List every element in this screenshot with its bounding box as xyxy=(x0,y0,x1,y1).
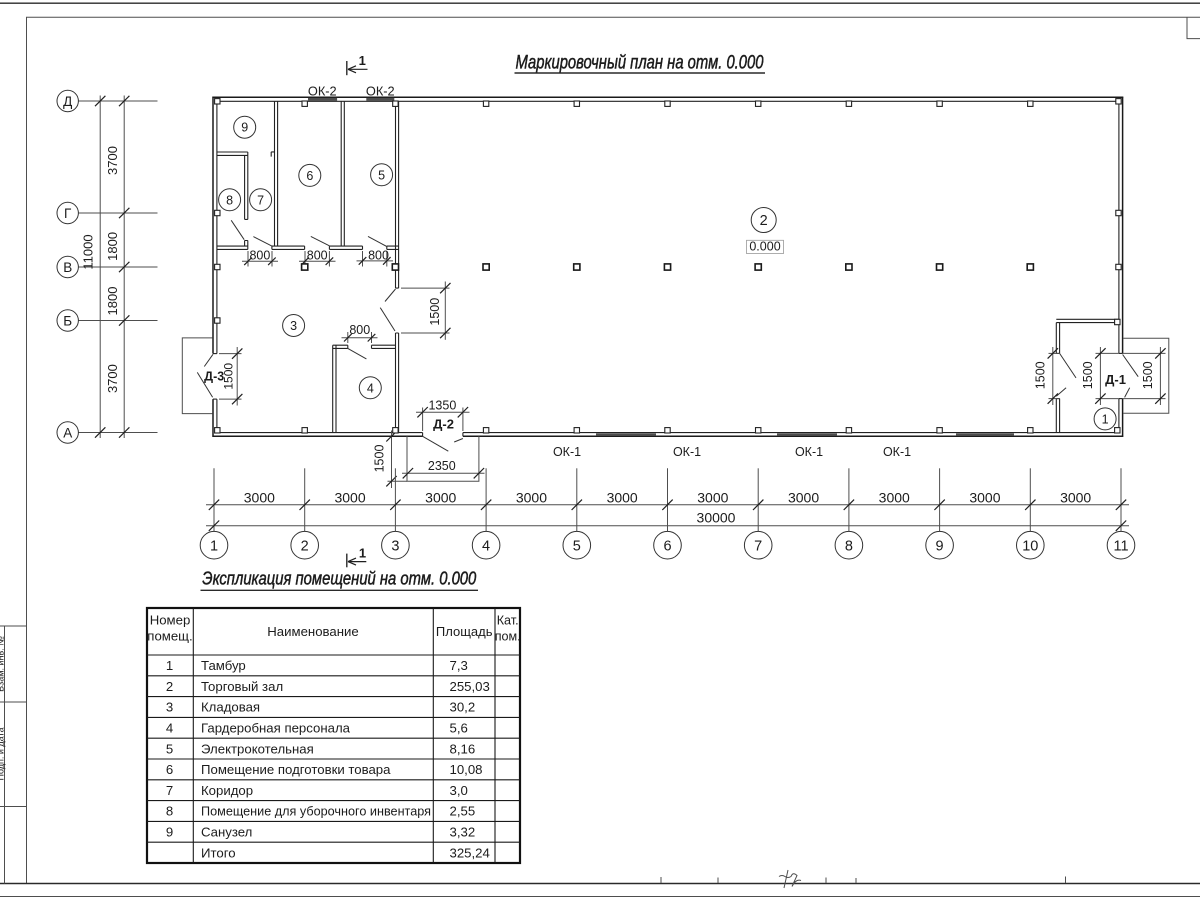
svg-text:3: 3 xyxy=(166,700,173,715)
svg-text:2: 2 xyxy=(760,213,768,229)
svg-text:1800: 1800 xyxy=(105,232,120,261)
svg-text:пом.: пом. xyxy=(495,629,521,643)
svg-text:11: 11 xyxy=(1113,538,1128,554)
svg-text:1500: 1500 xyxy=(428,298,442,326)
svg-text:1500: 1500 xyxy=(1033,361,1047,389)
svg-text:5: 5 xyxy=(166,741,173,756)
svg-text:5: 5 xyxy=(378,168,385,182)
svg-text:1500: 1500 xyxy=(1081,361,1095,389)
svg-text:Д: Д xyxy=(63,94,72,109)
svg-text:Кладовая: Кладовая xyxy=(201,700,260,715)
svg-text:255,03: 255,03 xyxy=(450,679,490,694)
svg-text:3000: 3000 xyxy=(969,489,1000,505)
svg-text:3000: 3000 xyxy=(788,489,819,505)
svg-text:3700: 3700 xyxy=(105,146,120,175)
svg-text:Помещение подготовки товара: Помещение подготовки товара xyxy=(201,762,391,777)
svg-text:Помещение для уборочного инвен: Помещение для уборочного инвентаря xyxy=(201,804,431,819)
svg-text:5: 5 xyxy=(573,538,581,554)
svg-text:ОК-2: ОК-2 xyxy=(308,84,337,99)
svg-text:6: 6 xyxy=(166,762,173,777)
svg-text:7,3: 7,3 xyxy=(450,658,468,673)
svg-text:2: 2 xyxy=(301,538,309,554)
svg-text:1800: 1800 xyxy=(105,287,120,316)
svg-text:10: 10 xyxy=(1022,538,1038,554)
svg-text:Электрокотельная: Электрокотельная xyxy=(201,741,314,756)
svg-text:Гардеробная персонала: Гардеробная персонала xyxy=(201,721,351,736)
svg-text:Номер: Номер xyxy=(150,612,191,627)
svg-text:Итого: Итого xyxy=(201,845,236,860)
svg-text:3000: 3000 xyxy=(334,489,365,505)
svg-text:Д-2: Д-2 xyxy=(433,416,454,431)
svg-text:В: В xyxy=(63,260,72,275)
svg-text:Г: Г xyxy=(64,206,72,221)
svg-text:6: 6 xyxy=(663,538,671,554)
svg-text:30,2: 30,2 xyxy=(450,700,476,715)
svg-text:Взам. инв. №: Взам. инв. № xyxy=(0,636,6,692)
svg-text:11000: 11000 xyxy=(81,234,96,269)
svg-text:800: 800 xyxy=(307,249,328,263)
svg-text:800: 800 xyxy=(349,323,370,337)
svg-text:8: 8 xyxy=(845,538,853,554)
svg-text:800: 800 xyxy=(249,249,270,263)
svg-text:10,08: 10,08 xyxy=(450,762,483,777)
svg-text:7: 7 xyxy=(166,783,173,798)
svg-text:8: 8 xyxy=(226,193,233,207)
svg-text:2350: 2350 xyxy=(428,459,456,473)
svg-text:3,0: 3,0 xyxy=(450,783,468,798)
svg-text:3000: 3000 xyxy=(516,489,547,505)
svg-text:Коридор: Коридор xyxy=(201,783,253,798)
svg-text:3700: 3700 xyxy=(105,364,120,393)
svg-text:Торговый зал: Торговый зал xyxy=(201,679,283,694)
svg-text:Д-1: Д-1 xyxy=(1105,372,1126,387)
svg-text:9: 9 xyxy=(241,121,248,135)
svg-text:1500: 1500 xyxy=(373,445,387,473)
svg-text:800: 800 xyxy=(368,248,389,262)
svg-text:6: 6 xyxy=(306,169,313,183)
svg-text:Б: Б xyxy=(63,313,72,328)
svg-text:3000: 3000 xyxy=(425,489,456,505)
svg-text:3: 3 xyxy=(391,538,399,554)
svg-text:7: 7 xyxy=(257,193,264,207)
svg-text:А: А xyxy=(63,425,72,440)
svg-text:Экспликация помещений на отм.: Экспликация помещений на отм. 0.000 xyxy=(202,569,476,589)
svg-text:Маркировочный план на отм. 0.0: Маркировочный план на отм. 0.000 xyxy=(516,52,764,73)
svg-text:3000: 3000 xyxy=(879,489,910,505)
svg-text:325,24: 325,24 xyxy=(450,845,490,860)
svg-text:ОК-1: ОК-1 xyxy=(795,445,823,459)
svg-text:Санузел: Санузел xyxy=(201,825,252,840)
svg-text:1: 1 xyxy=(210,538,218,554)
svg-text:9: 9 xyxy=(936,538,944,554)
svg-text:Наименование: Наименование xyxy=(267,624,358,639)
svg-text:3000: 3000 xyxy=(1060,489,1091,505)
svg-text:4: 4 xyxy=(367,381,374,395)
svg-text:3,32: 3,32 xyxy=(450,825,476,840)
svg-text:Подп. и дата: Подп. и дата xyxy=(0,727,6,780)
svg-text:1: 1 xyxy=(1102,412,1109,426)
svg-text:ОК-1: ОК-1 xyxy=(883,445,911,459)
svg-text:1: 1 xyxy=(166,658,173,673)
svg-text:1350: 1350 xyxy=(428,398,456,412)
svg-text:5,6: 5,6 xyxy=(450,721,468,736)
svg-text:30000: 30000 xyxy=(697,510,736,526)
svg-text:1500: 1500 xyxy=(221,363,235,390)
svg-text:Кат.: Кат. xyxy=(497,613,519,627)
svg-text:3000: 3000 xyxy=(244,489,275,505)
svg-text:9: 9 xyxy=(166,825,173,840)
svg-text:3000: 3000 xyxy=(697,489,728,505)
svg-text:0.000: 0.000 xyxy=(749,240,780,254)
svg-text:3000: 3000 xyxy=(607,489,638,505)
svg-text:1500: 1500 xyxy=(1141,361,1155,389)
svg-text:8,16: 8,16 xyxy=(450,741,476,756)
svg-text:ОК-1: ОК-1 xyxy=(673,445,701,459)
svg-text:3: 3 xyxy=(290,319,297,333)
svg-text:1: 1 xyxy=(359,53,366,68)
svg-text:Тамбур: Тамбур xyxy=(201,658,246,673)
svg-text:4: 4 xyxy=(482,538,490,554)
svg-text:ОК-2: ОК-2 xyxy=(366,84,395,99)
svg-text:ОК-1: ОК-1 xyxy=(553,445,581,459)
svg-text:Площадь: Площадь xyxy=(436,624,493,639)
svg-text:8: 8 xyxy=(166,804,173,819)
svg-text:7: 7 xyxy=(754,538,762,554)
svg-text:4: 4 xyxy=(166,721,173,736)
svg-text:2: 2 xyxy=(166,679,173,694)
svg-text:1: 1 xyxy=(359,546,366,561)
svg-text:помещ.: помещ. xyxy=(147,628,192,643)
svg-text:2,55: 2,55 xyxy=(450,804,476,819)
